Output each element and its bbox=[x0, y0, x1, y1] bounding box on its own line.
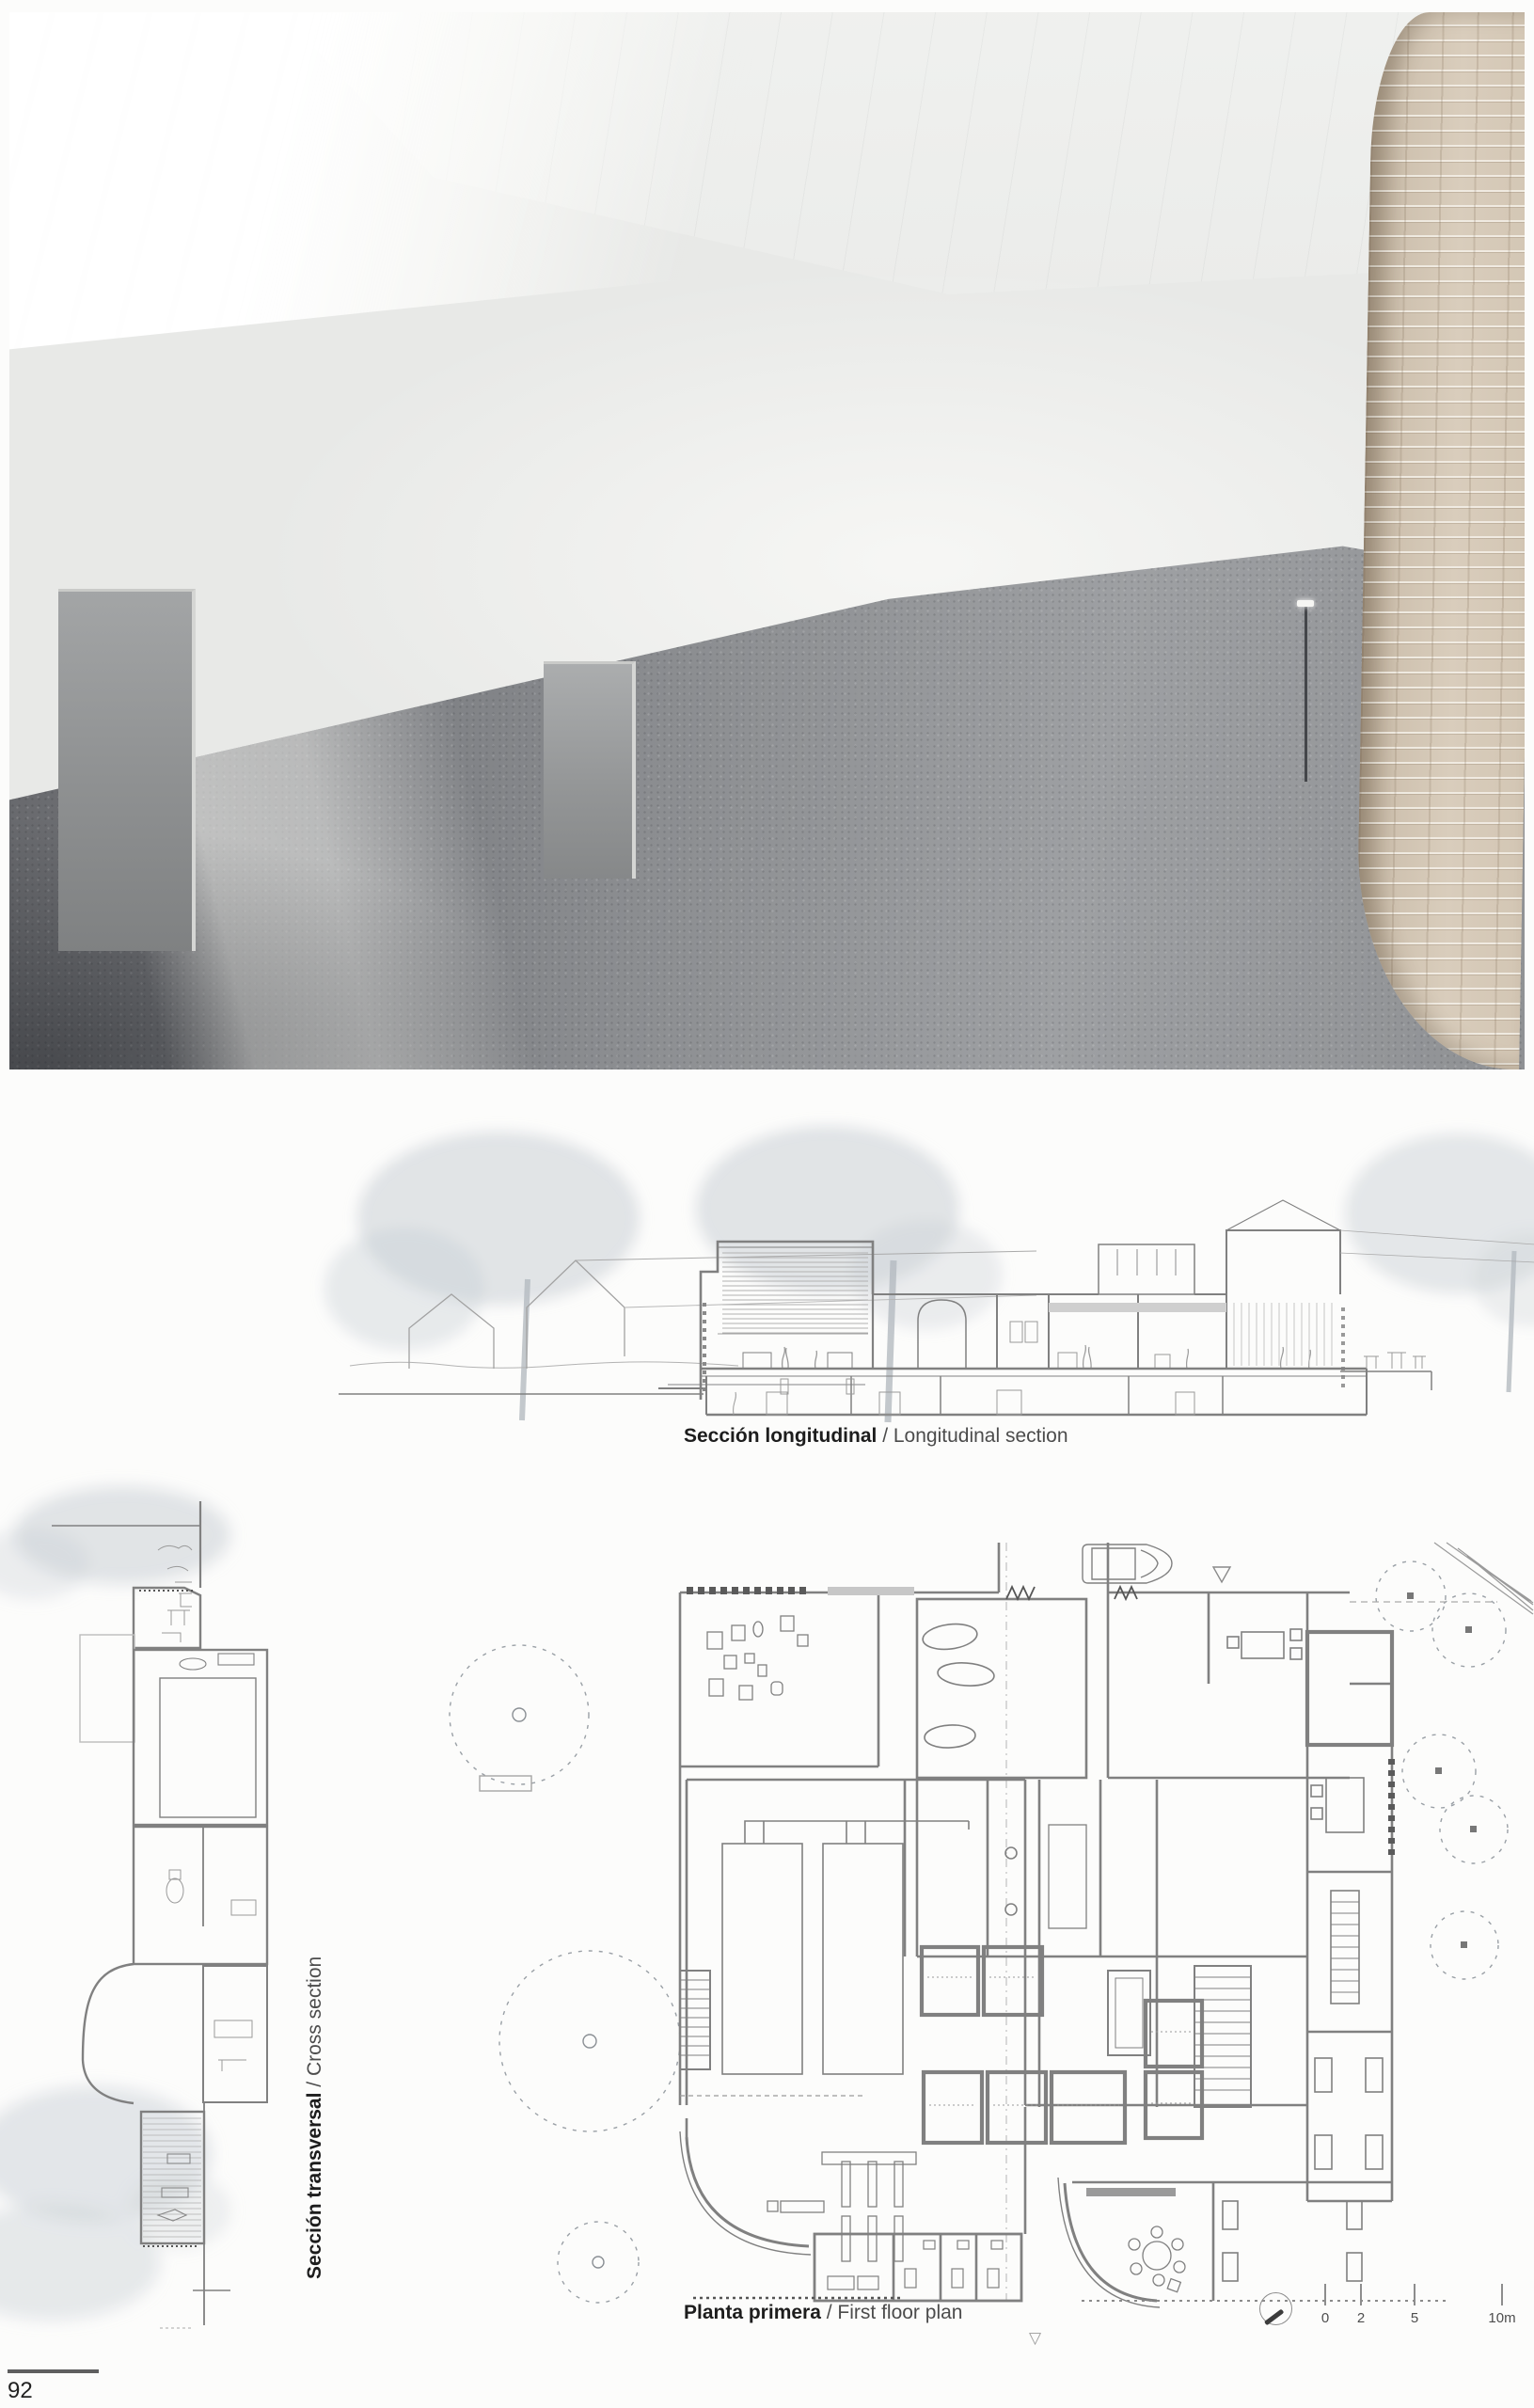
scale-label-10m: 10m bbox=[1474, 2310, 1530, 2326]
cross-section-drawing bbox=[0, 1496, 282, 2342]
plan-trees bbox=[450, 1561, 1508, 2303]
scale-tick bbox=[1414, 2284, 1415, 2305]
footer-rule bbox=[8, 2369, 99, 2373]
photo-door-opening-middle bbox=[544, 661, 636, 879]
plan-scattered-furniture bbox=[707, 1616, 808, 1700]
scale-label-2: 2 bbox=[1333, 2310, 1389, 2326]
first-floor-plan-drawing bbox=[498, 1543, 1533, 2305]
photo-curved-brick-wall bbox=[1354, 12, 1525, 1069]
scale-tick bbox=[1360, 2284, 1362, 2305]
caption-cross-section: Sección transversal / Cross section bbox=[303, 1956, 326, 2279]
magazine-page: Sección longitudinal / Longitudinal sect… bbox=[0, 0, 1534, 2408]
scale-label-5: 5 bbox=[1386, 2310, 1443, 2326]
photo-door-opening-left bbox=[58, 589, 196, 951]
plan-tree-centers bbox=[1407, 1592, 1477, 1948]
floor-lamp bbox=[1305, 607, 1307, 782]
plan-entry-zigzags bbox=[1006, 1587, 1137, 1599]
floor-lamp-head bbox=[1297, 600, 1314, 607]
page-number: 92 bbox=[8, 2378, 33, 2404]
scale-tick bbox=[1501, 2284, 1503, 2305]
cross-tree-silhouettes bbox=[0, 1486, 230, 2321]
caption-plan-en: First floor plan bbox=[837, 2302, 962, 2323]
plan-hatch-area bbox=[1434, 1543, 1533, 1614]
caption-transversal-es: Sección transversal bbox=[304, 2093, 325, 2279]
plan-tree-centers-left bbox=[480, 1708, 604, 2268]
caption-longitudinal-section: Sección longitudinal / Longitudinal sect… bbox=[684, 1424, 1068, 1448]
plan-lintel bbox=[1086, 2188, 1176, 2196]
caption-longitudinal-es: Sección longitudinal bbox=[684, 1425, 877, 1447]
plan-round-table bbox=[1129, 2226, 1185, 2292]
caption-transversal-en: Cross section bbox=[304, 1956, 325, 2076]
plan-car bbox=[1083, 1545, 1172, 1583]
caption-plan-es: Planta primera bbox=[684, 2302, 821, 2323]
caption-longitudinal-en: Longitudinal section bbox=[894, 1425, 1068, 1447]
triangle-down-marker: ▽ bbox=[1029, 2329, 1041, 2348]
section-tree-trunks bbox=[522, 1251, 1514, 1422]
plan-walls bbox=[680, 1543, 1392, 2307]
longitudinal-section-drawing bbox=[339, 1110, 1534, 1434]
caption-first-floor-plan: Planta primera / First floor plan bbox=[684, 2301, 962, 2324]
section-tree-silhouettes bbox=[324, 1126, 1534, 1350]
scale-tick bbox=[1324, 2284, 1326, 2305]
interior-photo bbox=[9, 12, 1525, 1069]
plan-triangle-marker bbox=[1213, 1567, 1230, 1582]
